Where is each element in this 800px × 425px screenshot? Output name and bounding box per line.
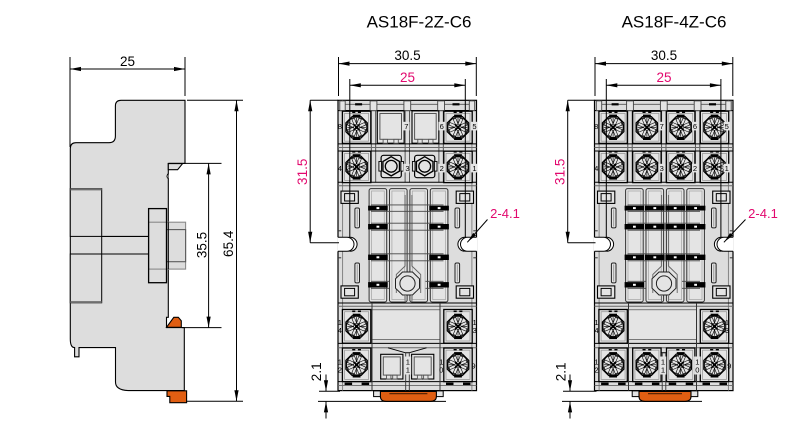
svg-text:2: 2: [440, 164, 444, 173]
svg-text:2: 2: [693, 164, 697, 173]
svg-text:6: 6: [440, 122, 444, 131]
svg-text:5: 5: [725, 122, 729, 131]
svg-text:4: 4: [338, 164, 342, 173]
svg-text:6: 6: [693, 122, 697, 131]
svg-text:4: 4: [338, 326, 342, 335]
svg-text:31.5: 31.5: [553, 159, 568, 185]
svg-text:8: 8: [594, 122, 598, 131]
svg-text:0: 0: [439, 366, 443, 375]
svg-text:AS18F-4Z-C6: AS18F-4Z-C6: [622, 13, 727, 32]
svg-text:4: 4: [594, 326, 598, 335]
svg-text:25: 25: [400, 70, 415, 85]
svg-text:1: 1: [472, 164, 476, 173]
svg-text:3: 3: [405, 164, 409, 173]
svg-text:1: 1: [725, 164, 729, 173]
svg-text:30.5: 30.5: [651, 48, 677, 63]
svg-text:0: 0: [695, 366, 699, 375]
svg-text:2-4.1: 2-4.1: [748, 206, 778, 221]
svg-text:3: 3: [725, 326, 729, 335]
svg-text:9: 9: [727, 362, 731, 371]
svg-text:2.1: 2.1: [554, 362, 569, 381]
svg-text:5: 5: [472, 122, 476, 131]
svg-text:25: 25: [120, 54, 135, 69]
svg-text:4: 4: [594, 164, 598, 173]
svg-text:7: 7: [660, 122, 664, 131]
svg-text:2: 2: [594, 366, 598, 375]
svg-text:2: 2: [338, 366, 342, 375]
svg-text:8: 8: [338, 122, 342, 131]
svg-text:2.1: 2.1: [309, 362, 324, 381]
svg-text:AS18F-2Z-C6: AS18F-2Z-C6: [367, 13, 472, 32]
svg-text:65.4: 65.4: [221, 230, 236, 257]
svg-text:3: 3: [660, 164, 664, 173]
svg-text:2-4.1: 2-4.1: [490, 206, 520, 221]
svg-text:30.5: 30.5: [394, 48, 420, 63]
svg-text:1: 1: [661, 366, 665, 375]
svg-text:31.5: 31.5: [295, 159, 310, 185]
svg-text:3: 3: [472, 326, 476, 335]
svg-text:35.5: 35.5: [195, 232, 210, 258]
svg-text:9: 9: [471, 362, 475, 371]
svg-text:25: 25: [656, 70, 671, 85]
svg-text:7: 7: [404, 122, 408, 131]
svg-text:1: 1: [406, 366, 410, 375]
